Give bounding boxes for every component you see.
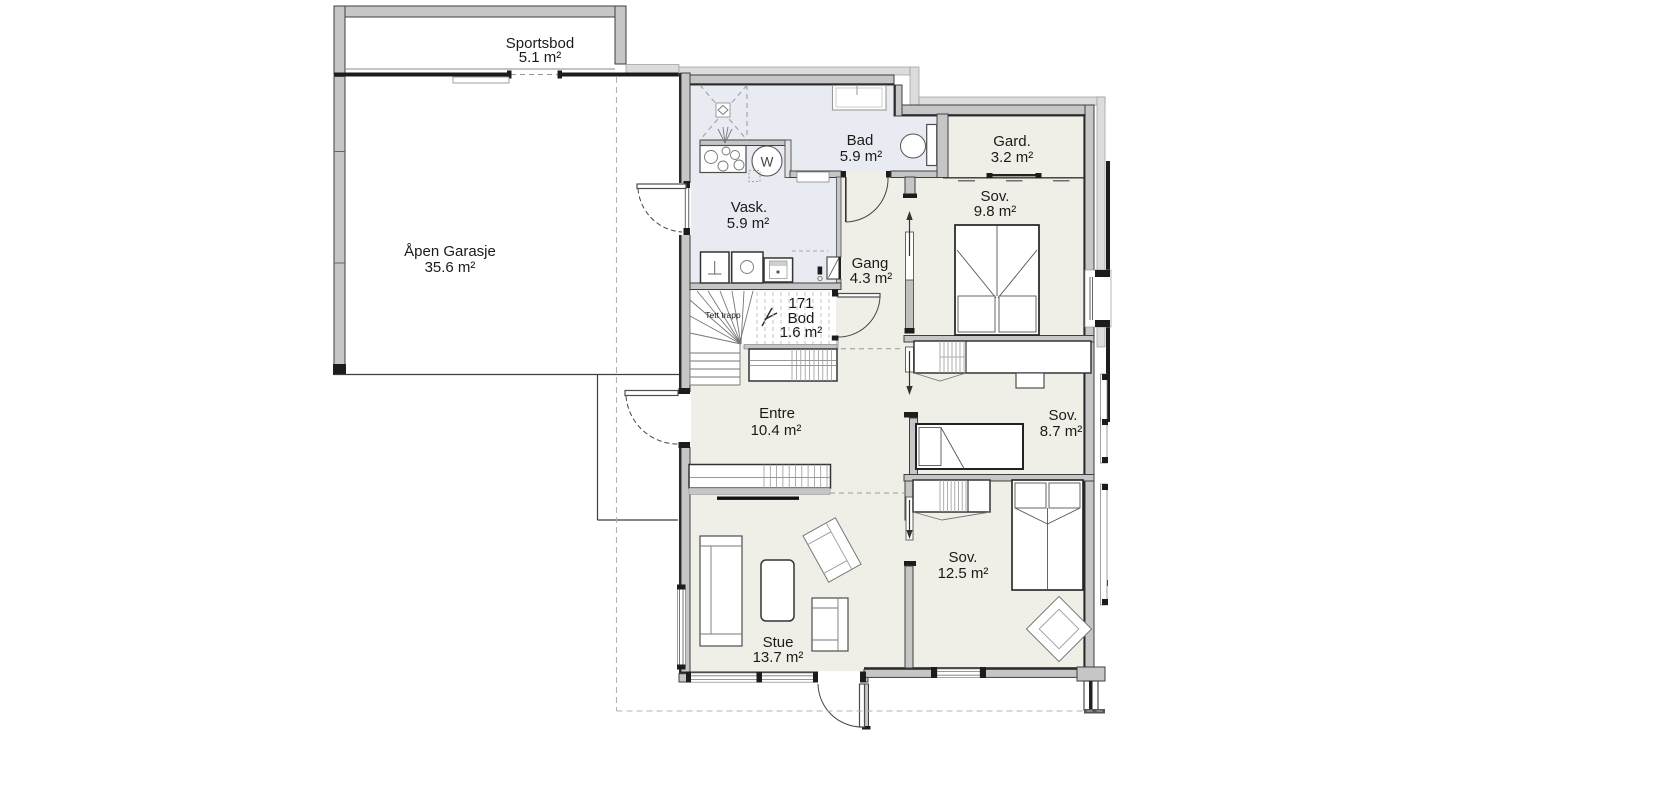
svg-text:5.1 m²: 5.1 m² [519,49,562,66]
svg-text:Gard.: Gard. [993,133,1031,150]
svg-text:5.9 m²: 5.9 m² [727,215,770,232]
svg-text:Tett trapp: Tett trapp [705,310,741,320]
svg-text:1.6 m²: 1.6 m² [780,324,823,341]
svg-text:Åpen Garasje: Åpen Garasje [404,243,496,260]
svg-text:13.7 m²: 13.7 m² [753,649,804,666]
svg-text:4.3 m²: 4.3 m² [850,270,893,287]
svg-text:Entre: Entre [759,405,795,422]
svg-text:10.4 m²: 10.4 m² [751,422,802,439]
svg-text:3.2 m²: 3.2 m² [991,149,1034,166]
svg-text:35.6 m²: 35.6 m² [425,259,476,276]
svg-text:9.8 m²: 9.8 m² [974,203,1017,220]
svg-text:Sov.: Sov. [949,549,978,566]
svg-text:5.9 m²: 5.9 m² [840,148,883,165]
svg-text:Sov.: Sov. [1049,407,1078,424]
svg-text:12.5 m²: 12.5 m² [938,565,989,582]
svg-text:Vask.: Vask. [731,199,767,216]
svg-text:8.7 m²: 8.7 m² [1040,423,1083,440]
svg-text:W: W [761,155,774,170]
svg-text:Bad: Bad [847,132,874,149]
